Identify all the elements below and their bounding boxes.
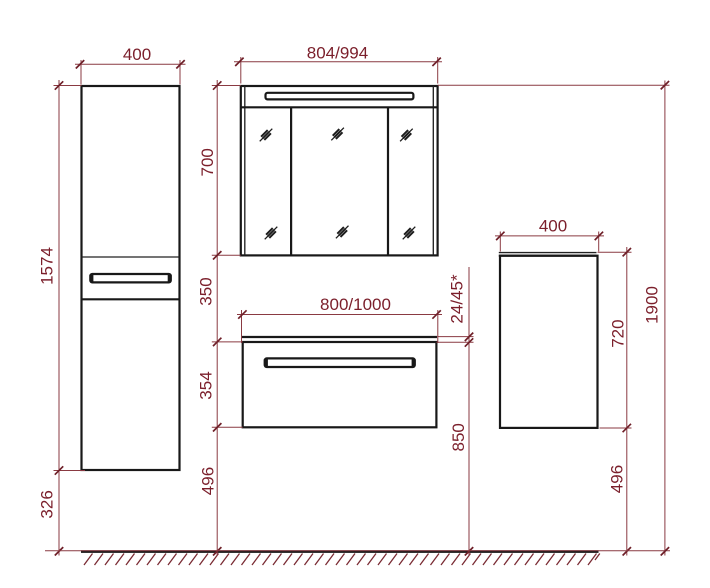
svg-text:400: 400 — [123, 45, 151, 64]
svg-text:354: 354 — [197, 371, 216, 399]
svg-text:496: 496 — [608, 465, 627, 493]
svg-text:400: 400 — [539, 217, 567, 236]
svg-text:1900: 1900 — [643, 286, 662, 324]
svg-text:350: 350 — [196, 277, 215, 305]
svg-text:804/994: 804/994 — [307, 43, 368, 62]
svg-text:1574: 1574 — [38, 247, 57, 285]
svg-text:700: 700 — [198, 148, 217, 176]
svg-text:850: 850 — [449, 423, 468, 451]
svg-text:24/45*: 24/45* — [448, 274, 467, 324]
svg-text:720: 720 — [609, 319, 628, 347]
svg-text:326: 326 — [38, 490, 57, 518]
svg-text:800/1000: 800/1000 — [320, 295, 391, 314]
svg-text:496: 496 — [198, 467, 217, 495]
